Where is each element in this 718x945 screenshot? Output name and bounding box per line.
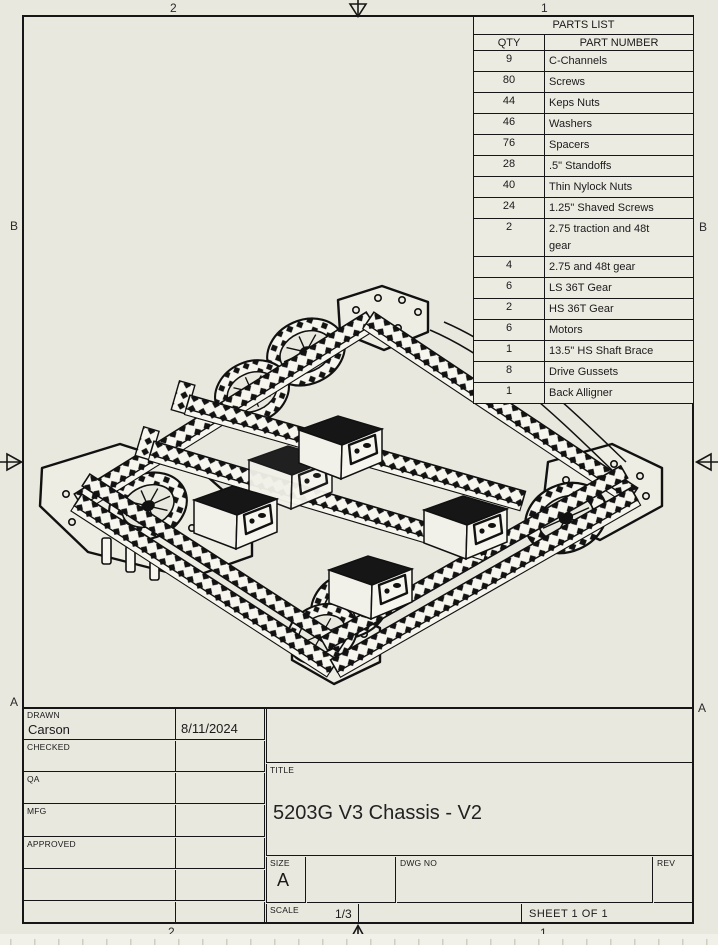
zone-label-right-lower: A — [698, 701, 706, 715]
parts-list-title: PARTS LIST — [474, 17, 693, 35]
parts-list-row: 1 13.5" HS Shaft Brace — [474, 341, 693, 362]
parts-list-row: 6 Motors — [474, 320, 693, 341]
zone-label-left-upper: B — [10, 219, 18, 233]
part-number: .5" Standoffs — [545, 156, 693, 176]
part-number: Back Alligner — [545, 383, 693, 403]
part-qty: 9 — [474, 51, 545, 71]
size-value: A — [277, 870, 289, 891]
part-number: Drive Gussets — [545, 362, 693, 382]
drawn-label: DRAWN — [27, 710, 60, 720]
parts-list-body: 9 C-Channels 80 Screws 44 Keps Nuts 46 W… — [474, 51, 693, 403]
scale-label: SCALE — [270, 905, 299, 915]
part-qty: 80 — [474, 72, 545, 92]
part-qty: 44 — [474, 93, 545, 113]
drawn-name: Carson — [28, 722, 70, 737]
part-number: C-Channels — [545, 51, 693, 71]
part-number: 2.75 traction and 48t gear — [545, 219, 693, 256]
qa-label: QA — [27, 774, 40, 784]
part-qty: 2 — [474, 299, 545, 319]
part-number: 13.5" HS Shaft Brace — [545, 341, 693, 361]
part-number: Spacers — [545, 135, 693, 155]
center-marker-left-icon — [0, 454, 22, 470]
part-qty: 6 — [474, 320, 545, 340]
parts-list-row: 1 Back Alligner — [474, 383, 693, 403]
rev-label: REV — [657, 858, 675, 868]
part-qty: 76 — [474, 135, 545, 155]
part-qty: 2 — [474, 219, 545, 256]
part-qty: 1 — [474, 341, 545, 361]
part-number: LS 36T Gear — [545, 278, 693, 298]
drawn-date: 8/11/2024 — [181, 721, 238, 736]
title-block: DRAWN Carson 8/11/2024 CHECKED QA MFG AP… — [22, 707, 694, 924]
checked-label: CHECKED — [27, 742, 70, 752]
parts-list-row: 44 Keps Nuts — [474, 93, 693, 114]
part-number: Thin Nylock Nuts — [545, 177, 693, 197]
size-label: SIZE — [270, 858, 290, 868]
parts-list-row: 24 1.25" Shaved Screws — [474, 198, 693, 219]
part-number: Washers — [545, 114, 693, 134]
qty-header: QTY — [474, 35, 545, 50]
zone-label-right-upper: B — [699, 220, 707, 234]
part-number: Motors — [545, 320, 693, 340]
sheet-number: SHEET 1 OF 1 — [529, 908, 608, 920]
zone-label-top-right: 1 — [541, 1, 548, 15]
drawing-sheet: 2 1 2 1 B A B A — [0, 0, 718, 945]
parts-list-row: 40 Thin Nylock Nuts — [474, 177, 693, 198]
bottom-ruler-strip — [0, 934, 718, 945]
parts-list-row: 8 Drive Gussets — [474, 362, 693, 383]
parts-list-table: PARTS LIST QTY PART NUMBER 9 C-Channels … — [473, 17, 693, 404]
part-qty: 8 — [474, 362, 545, 382]
part-qty: 1 — [474, 383, 545, 403]
parts-list-row: 2 2.75 traction and 48t gear — [474, 219, 693, 257]
parts-list-row: 76 Spacers — [474, 135, 693, 156]
part-qty: 6 — [474, 278, 545, 298]
parts-list-row: 2 HS 36T Gear — [474, 299, 693, 320]
mfg-label: MFG — [27, 806, 46, 816]
parts-list-row: 80 Screws — [474, 72, 693, 93]
parts-list-row: 6 LS 36T Gear — [474, 278, 693, 299]
zone-label-top-left: 2 — [170, 1, 177, 15]
drawing-title: 5203G V3 Chassis - V2 — [273, 802, 482, 825]
parts-list-row: 4 2.75 and 48t gear — [474, 257, 693, 278]
parts-list-row: 9 C-Channels — [474, 51, 693, 72]
part-qty: 28 — [474, 156, 545, 176]
dwg-no-label: DWG NO — [400, 858, 437, 868]
part-qty: 24 — [474, 198, 545, 218]
part-number: Screws — [545, 72, 693, 92]
part-number: HS 36T Gear — [545, 299, 693, 319]
part-qty: 40 — [474, 177, 545, 197]
title-label: TITLE — [270, 765, 294, 775]
scale-value: 1/3 — [335, 907, 352, 921]
part-number: 1.25" Shaved Screws — [545, 198, 693, 218]
approved-label: APPROVED — [27, 839, 76, 849]
part-number: 2.75 and 48t gear — [545, 257, 693, 277]
part-qty: 4 — [474, 257, 545, 277]
parts-list-row: 28 .5" Standoffs — [474, 156, 693, 177]
center-marker-right-icon — [697, 454, 718, 470]
parts-list-row: 46 Washers — [474, 114, 693, 135]
part-qty: 46 — [474, 114, 545, 134]
part-number-header: PART NUMBER — [545, 35, 693, 50]
zone-label-left-lower: A — [10, 695, 18, 709]
part-number: Keps Nuts — [545, 93, 693, 113]
